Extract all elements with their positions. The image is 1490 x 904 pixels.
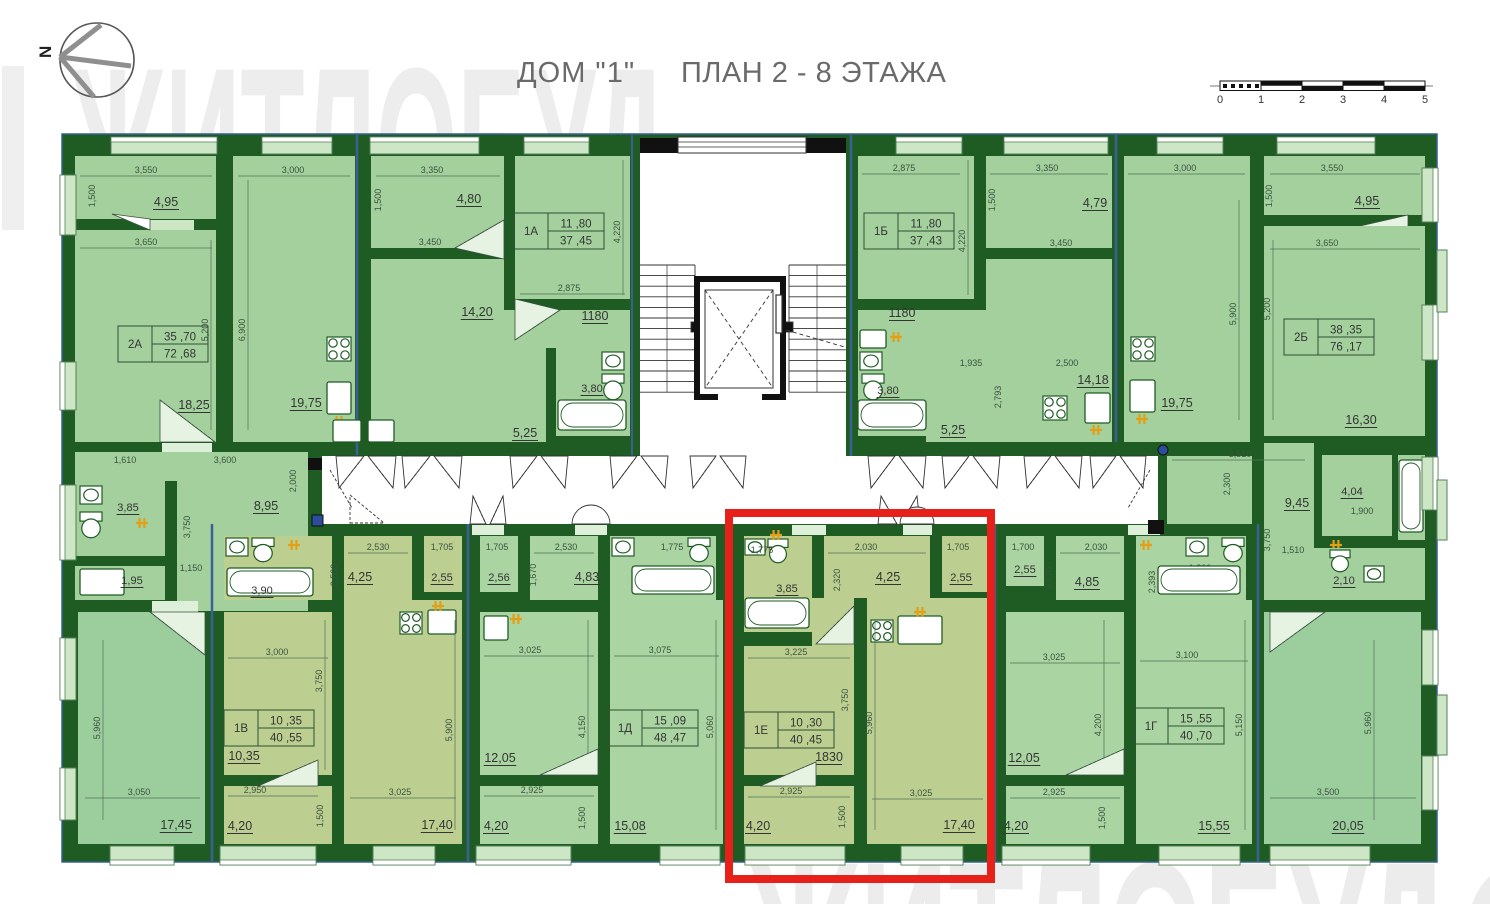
svg-text:9,45: 9,45 [1285, 496, 1309, 510]
svg-text:4,20: 4,20 [228, 819, 252, 833]
svg-text:5,150: 5,150 [1234, 714, 1244, 737]
svg-text:1Д: 1Д [618, 723, 632, 735]
svg-text:1Б: 1Б [874, 226, 888, 238]
svg-text:4,20: 4,20 [746, 819, 770, 833]
svg-text:4,83: 4,83 [575, 570, 599, 584]
svg-text:3,350: 3,350 [1036, 163, 1059, 173]
svg-text:40 ,55: 40 ,55 [270, 733, 302, 745]
svg-text:4,79: 4,79 [1083, 196, 1107, 210]
svg-text:4,95: 4,95 [154, 195, 178, 209]
svg-text:3,025: 3,025 [910, 788, 933, 798]
svg-text:1830: 1830 [815, 750, 843, 764]
svg-text:3,350: 3,350 [421, 165, 444, 175]
svg-text:1180: 1180 [889, 306, 916, 320]
svg-text:2,030: 2,030 [1085, 542, 1108, 552]
svg-text:1,500: 1,500 [373, 189, 383, 212]
svg-text:3,85: 3,85 [776, 583, 797, 595]
svg-text:1,500: 1,500 [1264, 185, 1274, 208]
svg-text:14,18: 14,18 [1077, 373, 1108, 387]
svg-text:2,875: 2,875 [893, 163, 916, 173]
svg-text:3,750: 3,750 [1262, 529, 1272, 552]
svg-text:48 ,47: 48 ,47 [654, 733, 686, 745]
svg-text:1: 1 [1258, 94, 1264, 106]
svg-text:3,550: 3,550 [135, 165, 158, 175]
svg-text:2Б: 2Б [1294, 332, 1308, 344]
svg-text:3,025: 3,025 [1043, 652, 1066, 662]
svg-text:5,960: 5,960 [1363, 712, 1373, 735]
svg-text:3,025: 3,025 [519, 645, 542, 655]
svg-text:1180: 1180 [582, 309, 609, 323]
svg-text:3,750: 3,750 [314, 670, 324, 693]
svg-text:2,000: 2,000 [288, 470, 298, 493]
svg-text:8,95: 8,95 [254, 499, 278, 513]
svg-text:2,320: 2,320 [832, 569, 842, 592]
svg-text:35 ,70: 35 ,70 [164, 332, 196, 344]
svg-text:ДОМ "1": ДОМ "1" [517, 57, 635, 89]
svg-text:2,530: 2,530 [555, 542, 578, 552]
svg-text:1,610: 1,610 [114, 455, 137, 465]
svg-text:5,900: 5,900 [1228, 303, 1238, 326]
svg-text:3: 3 [1340, 94, 1346, 106]
svg-text:12,05: 12,05 [1008, 751, 1039, 765]
svg-text:2,530: 2,530 [329, 564, 339, 587]
svg-text:6,900: 6,900 [237, 319, 247, 342]
svg-text:4,150: 4,150 [577, 716, 587, 739]
svg-text:2,793: 2,793 [993, 386, 1003, 409]
svg-text:3,750: 3,750 [840, 689, 850, 712]
svg-text:1,500: 1,500 [315, 805, 325, 828]
svg-text:15,55: 15,55 [1198, 819, 1229, 833]
svg-text:3,80: 3,80 [581, 383, 602, 395]
svg-text:1,150: 1,150 [180, 563, 203, 573]
svg-text:2,530: 2,530 [367, 542, 390, 552]
svg-text:4,220: 4,220 [957, 230, 967, 253]
svg-text:1,510: 1,510 [1282, 545, 1305, 555]
svg-text:1,705: 1,705 [431, 542, 454, 552]
svg-text:1А: 1А [524, 226, 538, 238]
svg-text:1,935: 1,935 [960, 358, 983, 368]
svg-text:1,670: 1,670 [528, 564, 538, 587]
svg-text:3,450: 3,450 [1050, 238, 1073, 248]
svg-text:3,000: 3,000 [266, 647, 289, 657]
svg-text:40 ,70: 40 ,70 [1180, 731, 1212, 743]
svg-text:15 ,09: 15 ,09 [654, 716, 686, 728]
svg-text:3,500: 3,500 [1317, 787, 1340, 797]
svg-text:4,200: 4,200 [1093, 714, 1103, 737]
svg-text:1,500: 1,500 [1097, 807, 1107, 830]
svg-text:3,650: 3,650 [1316, 238, 1339, 248]
svg-text:2,10: 2,10 [1333, 575, 1354, 587]
svg-text:2,950: 2,950 [244, 785, 267, 795]
svg-text:4,220: 4,220 [612, 221, 622, 244]
svg-text:11 ,80: 11 ,80 [560, 219, 591, 231]
svg-text:37 ,43: 37 ,43 [910, 236, 942, 248]
svg-text:18,25: 18,25 [178, 398, 209, 412]
svg-text:ПЛАН 2 - 8 ЭТАЖА: ПЛАН 2 - 8 ЭТАЖА [681, 57, 947, 89]
svg-text:3,100: 3,100 [1176, 650, 1199, 660]
svg-text:19,75: 19,75 [1161, 396, 1192, 410]
svg-text:1,500: 1,500 [577, 807, 587, 830]
svg-text:3,85: 3,85 [117, 502, 138, 514]
svg-text:2,875: 2,875 [558, 283, 581, 293]
svg-text:5,25: 5,25 [941, 423, 965, 437]
svg-text:1,500: 1,500 [987, 189, 997, 212]
svg-text:N: N [36, 46, 55, 58]
svg-text:2,55: 2,55 [950, 572, 971, 584]
svg-text:38 ,35: 38 ,35 [1330, 325, 1362, 337]
svg-text:3,025: 3,025 [389, 787, 412, 797]
svg-text:1,700: 1,700 [1012, 542, 1035, 552]
svg-text:3,225: 3,225 [785, 647, 808, 657]
svg-text:4: 4 [1381, 94, 1387, 106]
svg-text:4,25: 4,25 [348, 570, 372, 584]
svg-text:3,750: 3,750 [182, 516, 192, 539]
svg-text:5,060: 5,060 [705, 716, 715, 739]
svg-text:1Г: 1Г [1145, 721, 1158, 733]
svg-text:5,900: 5,900 [444, 719, 454, 742]
svg-text:3,510: 3,510 [1229, 449, 1252, 459]
svg-text:5,200: 5,200 [1262, 298, 1272, 321]
svg-text:2,925: 2,925 [521, 785, 544, 795]
svg-text:17,40: 17,40 [943, 818, 974, 832]
svg-text:4,80: 4,80 [457, 192, 481, 206]
svg-text:3,600: 3,600 [214, 455, 237, 465]
svg-text:1,500: 1,500 [837, 806, 847, 829]
svg-text:4,25: 4,25 [876, 570, 900, 584]
svg-text:3,450: 3,450 [419, 237, 442, 247]
svg-text:4,20: 4,20 [1004, 819, 1028, 833]
svg-text:5: 5 [1422, 94, 1428, 106]
svg-text:1,500: 1,500 [87, 185, 97, 208]
svg-text:11 ,80: 11 ,80 [910, 219, 941, 231]
svg-text:1,900: 1,900 [1351, 506, 1374, 516]
svg-text:1,670: 1,670 [1044, 567, 1054, 590]
svg-text:3,000: 3,000 [282, 165, 305, 175]
svg-text:3,90: 3,90 [251, 585, 272, 597]
svg-text:4,85: 4,85 [1075, 575, 1099, 589]
svg-text:37 ,45: 37 ,45 [560, 236, 592, 248]
svg-text:3,000: 3,000 [1174, 163, 1197, 173]
svg-text:2А: 2А [128, 339, 142, 351]
svg-text:2,300: 2,300 [1222, 473, 1232, 496]
svg-text:5,960: 5,960 [864, 712, 874, 735]
svg-text:2,55: 2,55 [431, 572, 452, 584]
svg-text:19,75: 19,75 [290, 396, 321, 410]
svg-text:10 ,30: 10 ,30 [790, 718, 822, 730]
svg-text:10,35: 10,35 [228, 749, 259, 763]
svg-text:72 ,68: 72 ,68 [164, 349, 196, 361]
svg-text:2,030: 2,030 [855, 542, 878, 552]
svg-text:40 ,45: 40 ,45 [790, 735, 822, 747]
svg-text:1,775: 1,775 [661, 542, 684, 552]
svg-text:1,705: 1,705 [947, 542, 970, 552]
svg-text:20,05: 20,05 [1332, 819, 1363, 833]
svg-text:3,80: 3,80 [877, 385, 898, 397]
svg-text:1В: 1В [234, 723, 248, 735]
svg-text:15 ,55: 15 ,55 [1180, 714, 1212, 726]
svg-text:14,20: 14,20 [461, 305, 492, 319]
svg-text:3,650: 3,650 [135, 237, 158, 247]
svg-text:5,25: 5,25 [513, 426, 537, 440]
svg-text:17,40: 17,40 [421, 818, 452, 832]
svg-text:2,500: 2,500 [1056, 358, 1079, 368]
svg-text:2,56: 2,56 [488, 572, 509, 584]
svg-text:3,550: 3,550 [1321, 163, 1344, 173]
svg-text:2,393: 2,393 [1147, 571, 1157, 594]
svg-text:76 ,17: 76 ,17 [1330, 342, 1362, 354]
svg-text:5,960: 5,960 [92, 717, 102, 740]
svg-text:2,925: 2,925 [1043, 787, 1066, 797]
svg-text:17,45: 17,45 [160, 818, 191, 832]
svg-text:3,075: 3,075 [649, 645, 672, 655]
svg-text:2: 2 [1299, 94, 1305, 106]
svg-text:4,04: 4,04 [1341, 486, 1362, 498]
svg-text:1,95: 1,95 [121, 575, 142, 587]
svg-text:З: З [1462, 814, 1490, 904]
svg-text:3,050: 3,050 [128, 787, 151, 797]
svg-text:16,30: 16,30 [1345, 413, 1376, 427]
svg-text:0: 0 [1217, 94, 1223, 106]
svg-text:15,08: 15,08 [614, 819, 645, 833]
svg-text:2,925: 2,925 [780, 786, 803, 796]
svg-text:2,55: 2,55 [1014, 564, 1035, 576]
svg-text:12,05: 12,05 [484, 751, 515, 765]
svg-text:1,775: 1,775 [751, 545, 774, 555]
svg-text:4,20: 4,20 [484, 819, 508, 833]
svg-text:1Е: 1Е [754, 725, 768, 737]
svg-text:4,95: 4,95 [1355, 194, 1379, 208]
svg-text:1,705: 1,705 [486, 542, 509, 552]
svg-text:10 ,35: 10 ,35 [270, 716, 302, 728]
